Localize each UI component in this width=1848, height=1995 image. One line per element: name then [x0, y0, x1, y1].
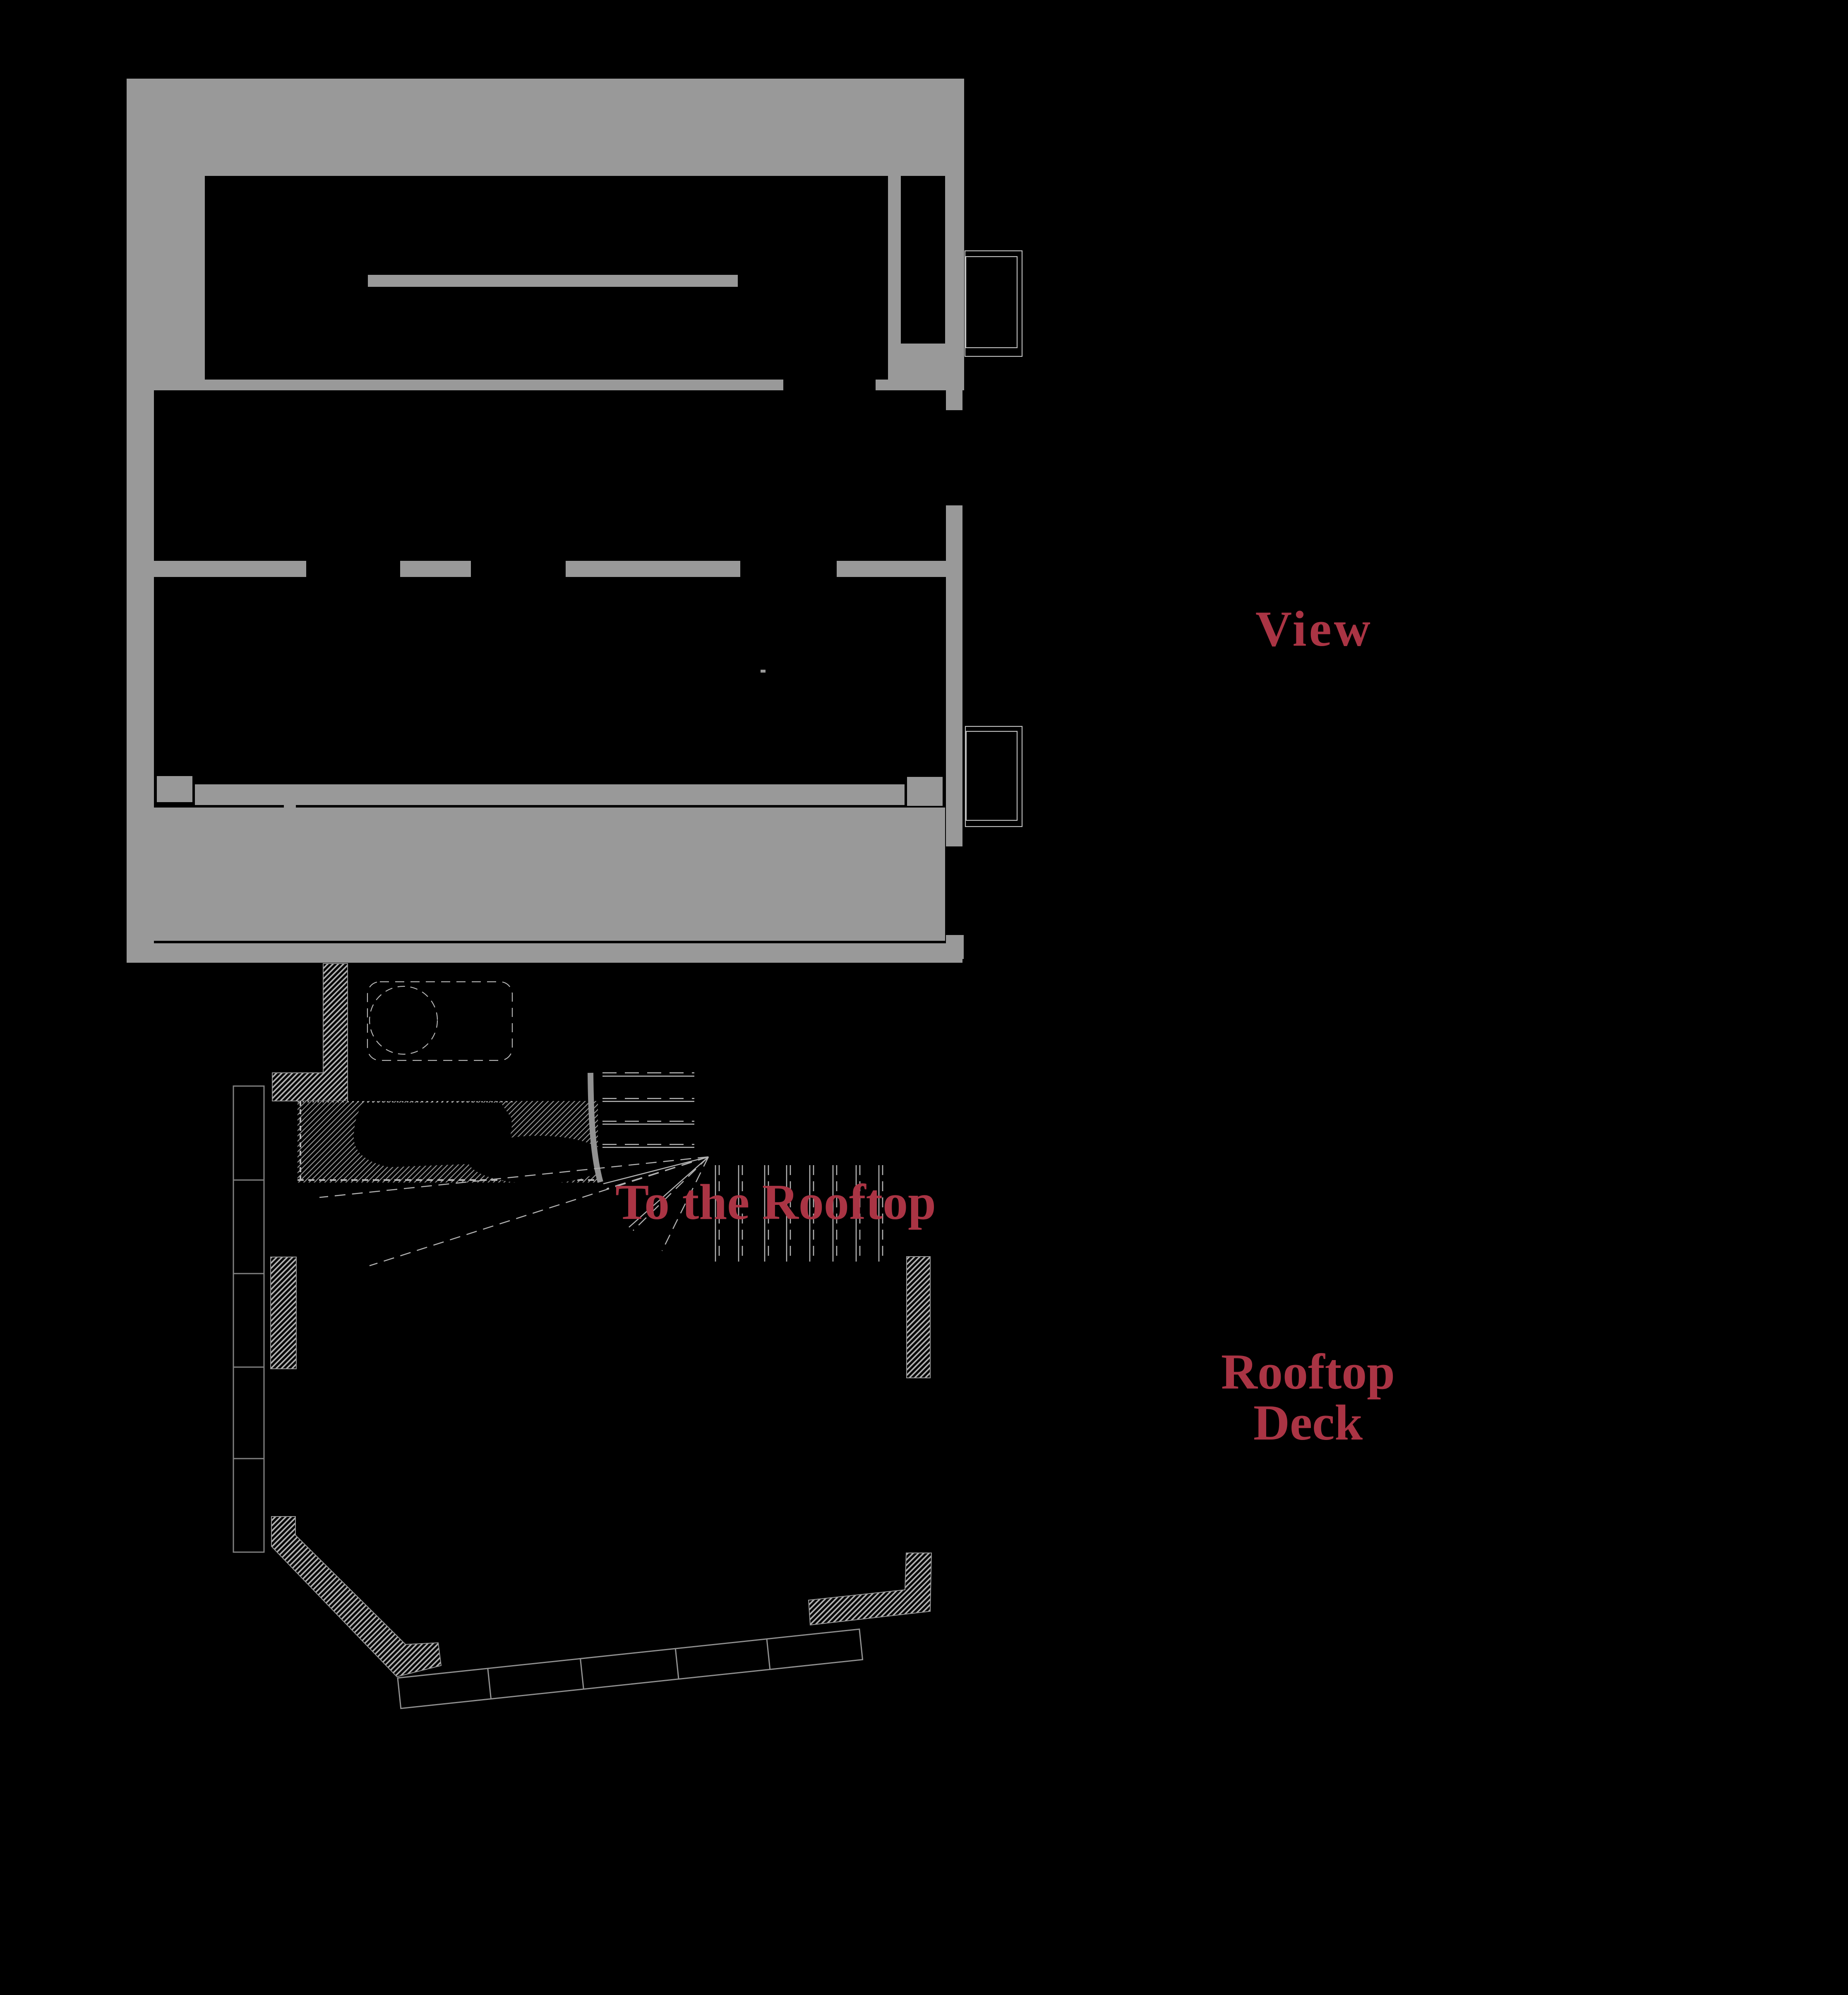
svg-text:Rooftop: Rooftop — [1221, 1344, 1395, 1400]
svg-text:View: View — [1255, 601, 1373, 657]
svg-text:To the Rooftop: To the Rooftop — [615, 1174, 936, 1230]
svg-text:Deck: Deck — [1253, 1395, 1363, 1451]
